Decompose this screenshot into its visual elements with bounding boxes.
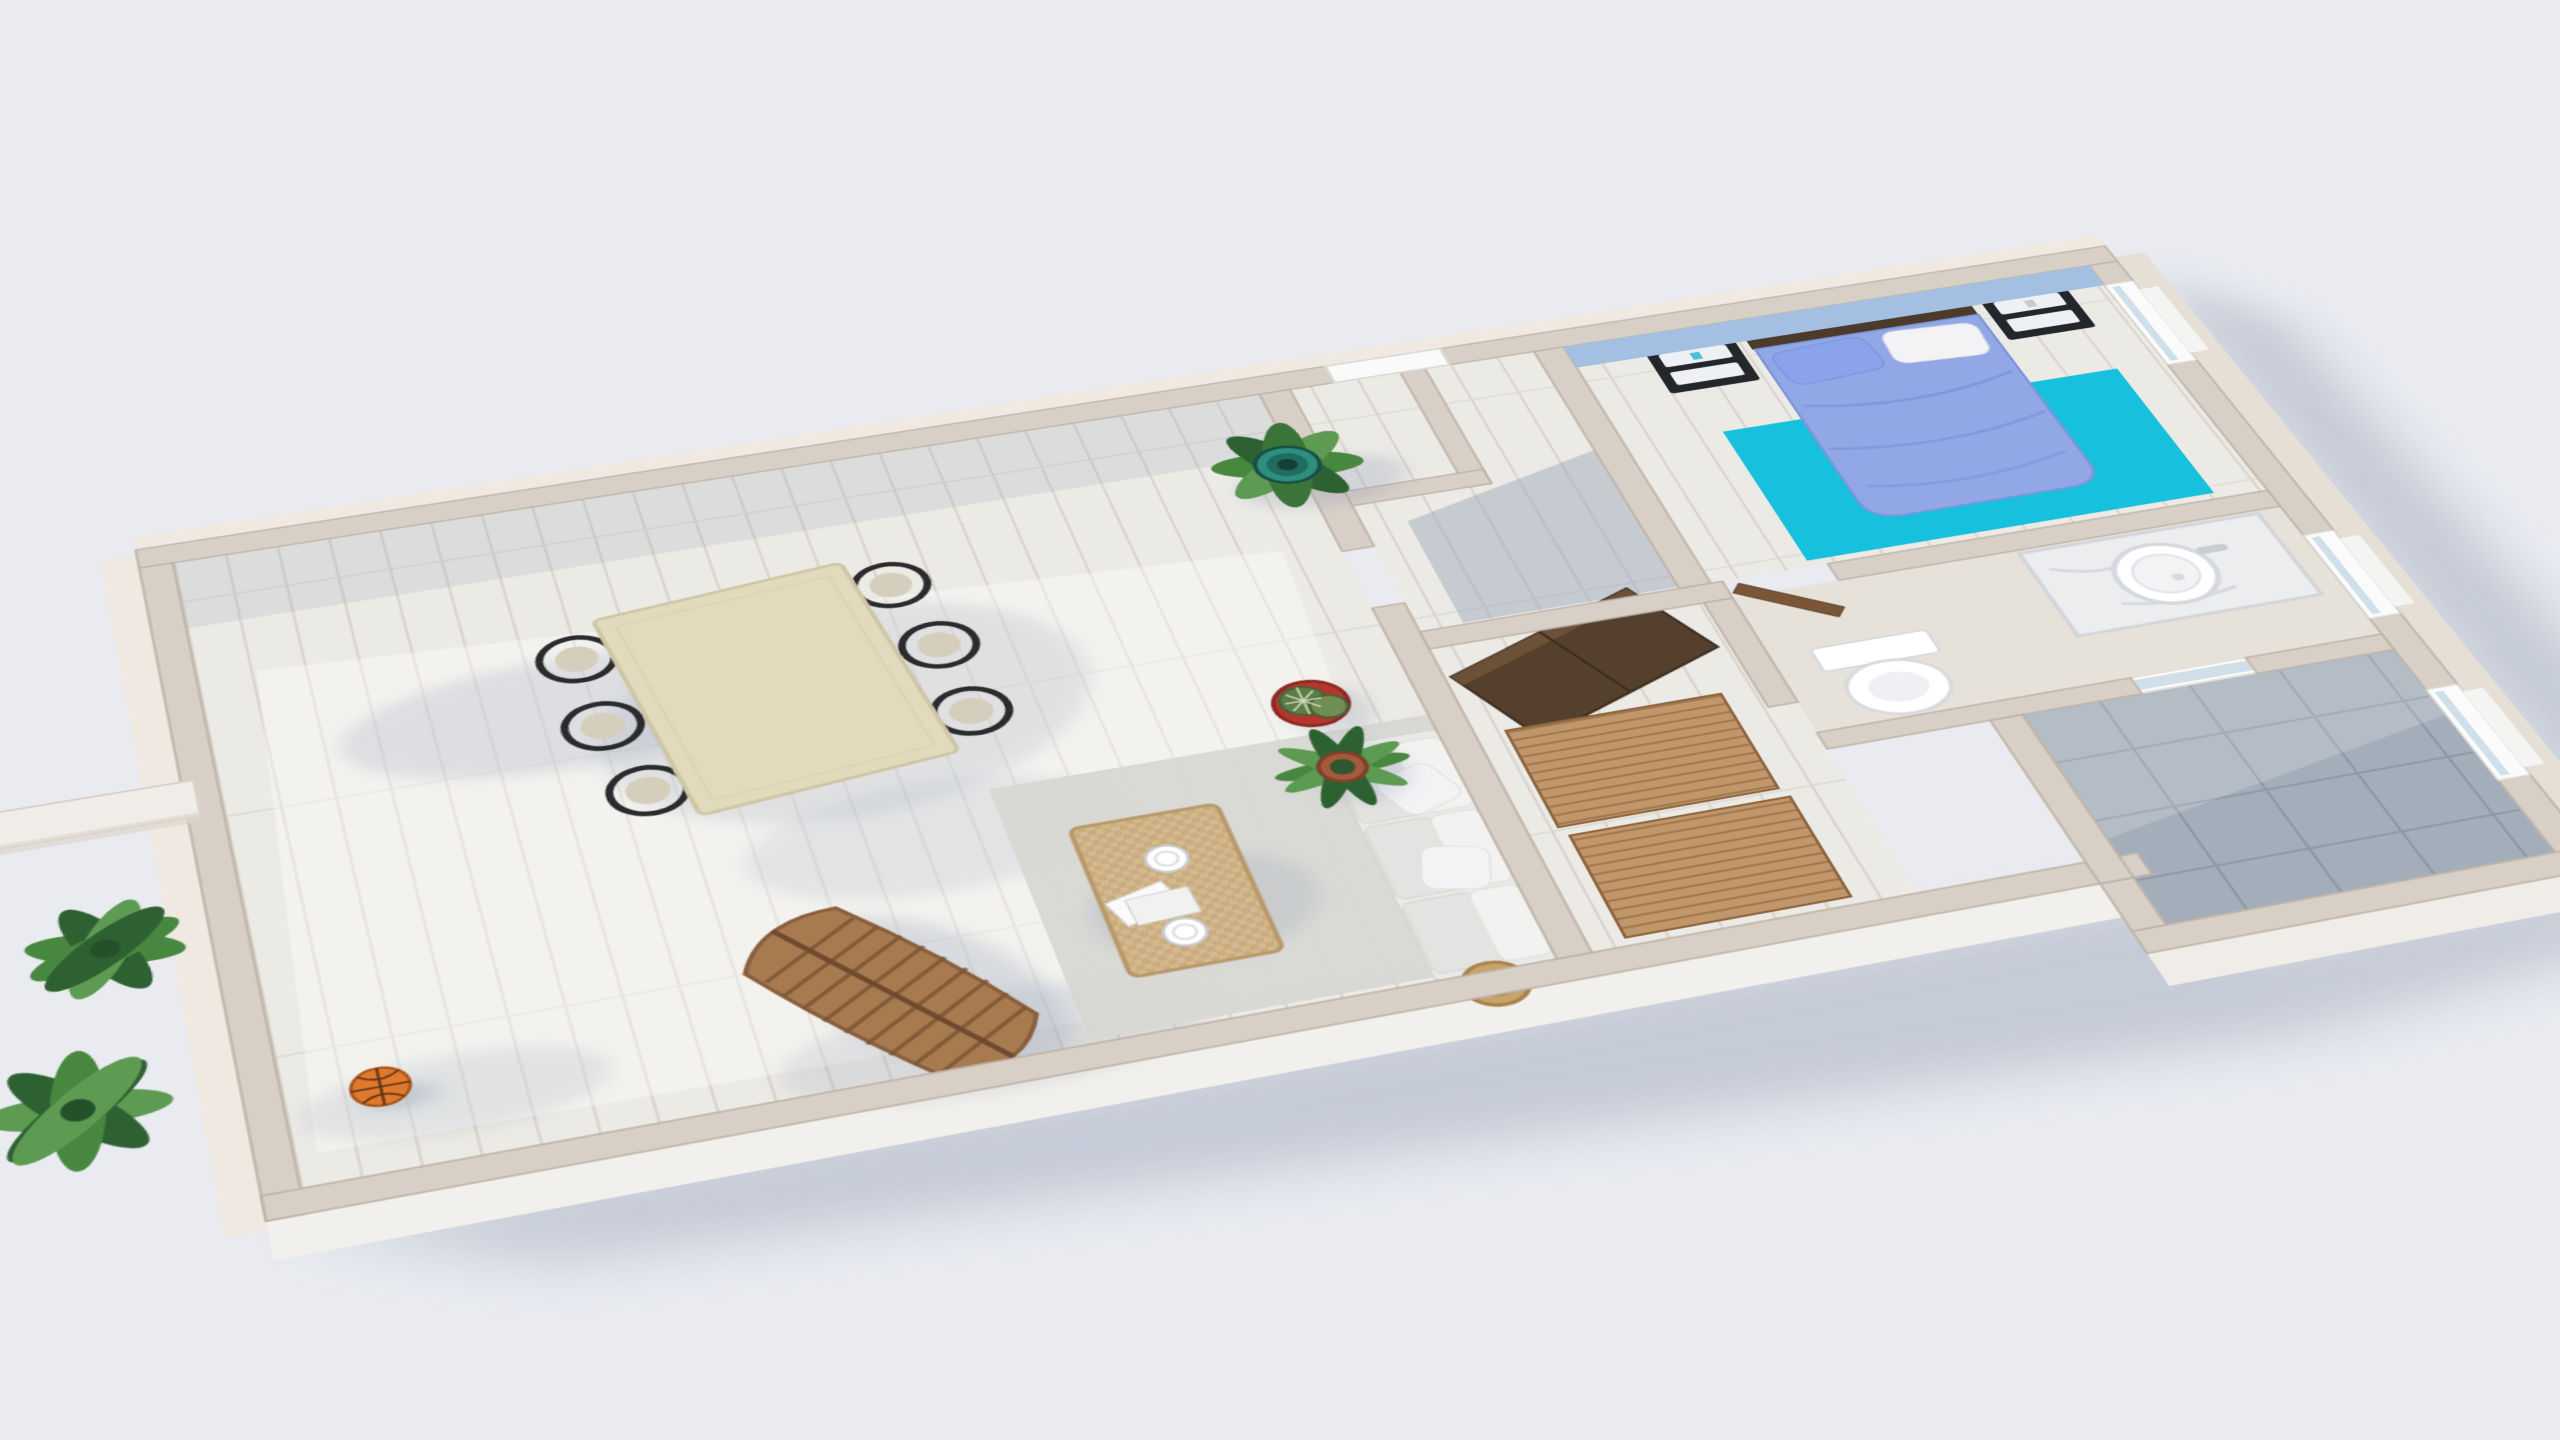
render-backdrop (0, 0, 2560, 1440)
floor-plan-svg (0, 191, 2560, 1440)
floor-plan-viewport[interactable] (0, 191, 2560, 1440)
throw-pillow (1421, 846, 1492, 888)
exterior-plant-lower[interactable] (0, 1034, 186, 1189)
